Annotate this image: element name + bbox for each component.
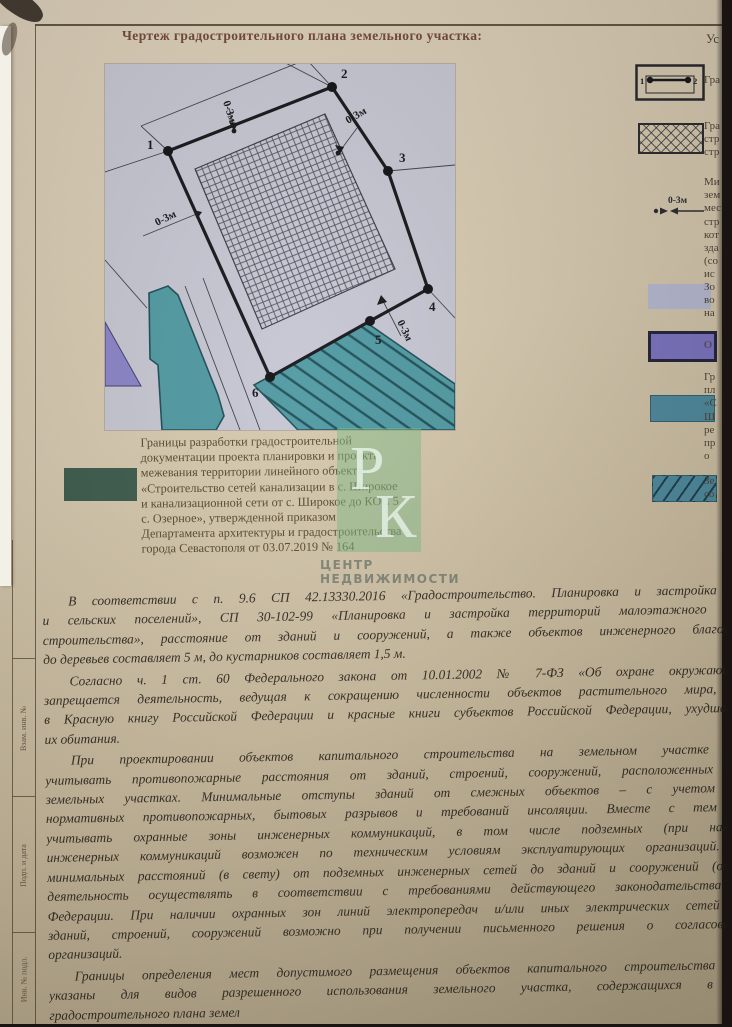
legend-boundary-symbol: 1 2	[635, 64, 705, 106]
paragraph: В соответствии с п. 9.6 СП 42.13330.2016…	[42, 580, 732, 670]
legend-label: Зовона	[704, 281, 715, 321]
photo-right-edge	[716, 0, 732, 1024]
legend-label: Грпл«СШрепро	[704, 371, 717, 463]
legend-color-swatch	[648, 284, 711, 309]
legend-offset-symbol: 0-3м	[652, 196, 704, 216]
point-label-3: 3	[399, 150, 406, 165]
page-title: Чертеж градостроительного плана земельно…	[122, 28, 482, 44]
main-text: В соответствии с п. 9.6 СП 42.13330.2016…	[42, 580, 732, 1027]
paragraph: Согласно ч. 1 ст. 60 Федерального закона…	[43, 659, 732, 749]
paragraph: Границы определения мест допустимого раз…	[49, 954, 732, 1024]
frame-vertical-line	[35, 24, 36, 1024]
stamp-cell: Подп. и дата	[12, 796, 35, 933]
stamp-cell: Взам. инв. №	[12, 658, 35, 797]
stamp-column: Взам. инв. №Подп. и датаИнв. № подл.	[12, 586, 35, 1024]
legend-label: О	[704, 339, 712, 352]
legend-hatched-swatch	[652, 475, 717, 502]
watermark-brand: ЦЕНТР НЕДВИЖИМОСТИ	[320, 558, 460, 586]
frame-top-line	[35, 24, 722, 26]
watermark-brand-line2: НЕДВИЖИМОСТИ	[320, 572, 460, 586]
paper-page: Взам. инв. №Подп. и датаИнв. № подл. Чер…	[0, 0, 722, 1024]
point-label-6: 6	[252, 385, 259, 400]
point-label-5: 5	[375, 332, 382, 347]
page-edge-strip	[0, 26, 11, 586]
paragraph: При проектировании объектов капитального…	[45, 739, 732, 965]
legend-crosshatch-symbol	[638, 123, 704, 154]
svg-text:1: 1	[640, 76, 644, 86]
document-photo: { "title": "Чертеж градостроительного пл…	[0, 0, 732, 1024]
legend-color-swatch	[648, 331, 717, 362]
watermark-brand-line1: ЦЕНТР	[320, 558, 460, 572]
point-label-2: 2	[341, 66, 348, 81]
site-plan-drawing: 1 2 3 4 5 6 0-3м 0-3м 0-3м 0-3м	[105, 64, 455, 430]
caption-color-swatch	[64, 468, 137, 501]
stamp-cell: Инв. № подл.	[12, 932, 35, 1025]
point-label-1: 1	[147, 137, 154, 152]
legend-label: Зесо	[704, 475, 714, 501]
site-plan-svg: 1 2 3 4 5 6 0-3м 0-3м 0-3м 0-3м	[105, 64, 455, 430]
watermark-letter-k: К	[375, 486, 416, 548]
point-label-4: 4	[429, 299, 436, 314]
legend-color-swatch	[650, 395, 715, 422]
svg-text:2: 2	[693, 76, 697, 86]
